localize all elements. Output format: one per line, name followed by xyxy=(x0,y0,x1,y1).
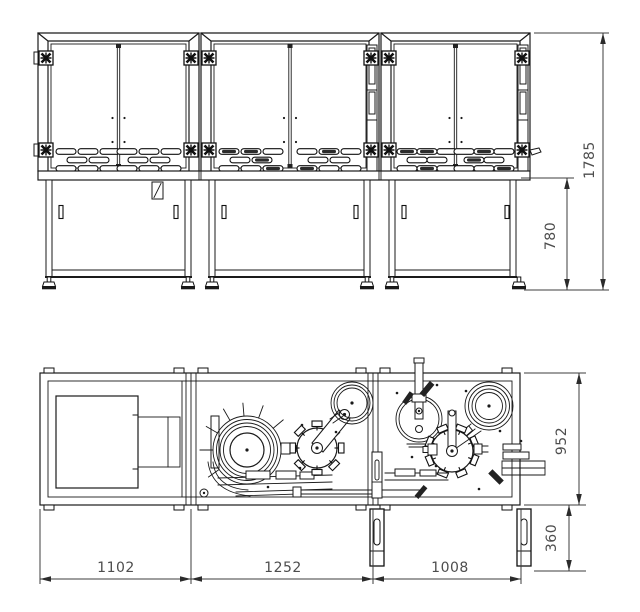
module1-upper-enclosure xyxy=(34,33,199,171)
door-hinges xyxy=(382,51,529,157)
door-hinges xyxy=(202,51,378,157)
outfeed-conveyor xyxy=(502,444,545,475)
door-handle xyxy=(59,206,63,219)
hinge-backplate xyxy=(34,52,38,64)
side-latch-handle xyxy=(530,148,541,155)
drawing-page: 1785 780 xyxy=(0,0,640,612)
leveling-foot xyxy=(360,277,374,289)
rotary-turret-1 xyxy=(290,410,350,476)
cabinet-leg xyxy=(510,180,516,277)
dim-label-1102: 1102 xyxy=(97,560,135,576)
pusher-cylinder xyxy=(372,452,382,498)
module1-base-cabinet xyxy=(42,180,195,289)
module2-base-cabinet xyxy=(205,180,374,289)
vibratory-bowl-feeder-2 xyxy=(330,382,373,424)
dim-label-1785: 1785 xyxy=(582,141,598,179)
door-hinges xyxy=(39,51,198,157)
plan-view: 1102 1252 1008 952 360 xyxy=(40,358,586,584)
caster-leg xyxy=(370,509,384,566)
door-handle xyxy=(505,206,509,219)
table-top-band xyxy=(38,171,530,180)
cabinet-leg xyxy=(389,180,395,277)
module3-upper-enclosure xyxy=(381,33,541,172)
caster-leg xyxy=(517,509,531,566)
process-drum xyxy=(396,358,442,447)
plan-module1-hopper xyxy=(56,396,180,488)
front-elevation-view: 1785 780 xyxy=(34,33,609,290)
dim-label-1008: 1008 xyxy=(431,560,469,576)
dim-label-360: 360 xyxy=(544,524,560,552)
module3-base-cabinet xyxy=(385,180,526,289)
module2-upper-enclosure xyxy=(201,33,379,172)
dim-label-952: 952 xyxy=(554,427,570,455)
cabinet-leg xyxy=(209,180,215,277)
door-split-line xyxy=(289,44,291,168)
cabinet-leg xyxy=(46,180,52,277)
leveling-foot xyxy=(205,277,219,289)
dim-label-1252: 1252 xyxy=(264,560,302,576)
leveling-foot xyxy=(181,277,195,289)
cabinet-leg xyxy=(364,180,370,277)
dimension-base-height: 780 xyxy=(521,178,574,290)
cabinet-leg xyxy=(185,180,191,277)
door-handle xyxy=(354,206,358,219)
door-handle-holes xyxy=(111,117,125,143)
vent-slots xyxy=(397,149,514,172)
door-handle xyxy=(402,206,406,219)
technical-drawing-canvas: 1785 780 xyxy=(0,0,640,612)
sliding-door-plate xyxy=(152,182,163,199)
dimension-module-widths: 1102 1252 1008 xyxy=(40,509,521,584)
plan-module2 xyxy=(200,382,373,497)
door-handle xyxy=(222,206,226,219)
door-handle-holes xyxy=(283,117,297,143)
door-handle xyxy=(174,206,178,219)
leveling-foot xyxy=(385,277,399,289)
leveling-foot xyxy=(512,277,526,289)
pipe-cap xyxy=(414,358,424,363)
hinge-backplate xyxy=(34,144,38,156)
dimension-leg-depth: 360 xyxy=(544,505,569,571)
door-handle-holes xyxy=(448,117,462,143)
dim-label-780: 780 xyxy=(543,222,559,250)
leveling-foot xyxy=(42,277,56,289)
vent-slots xyxy=(56,149,181,172)
